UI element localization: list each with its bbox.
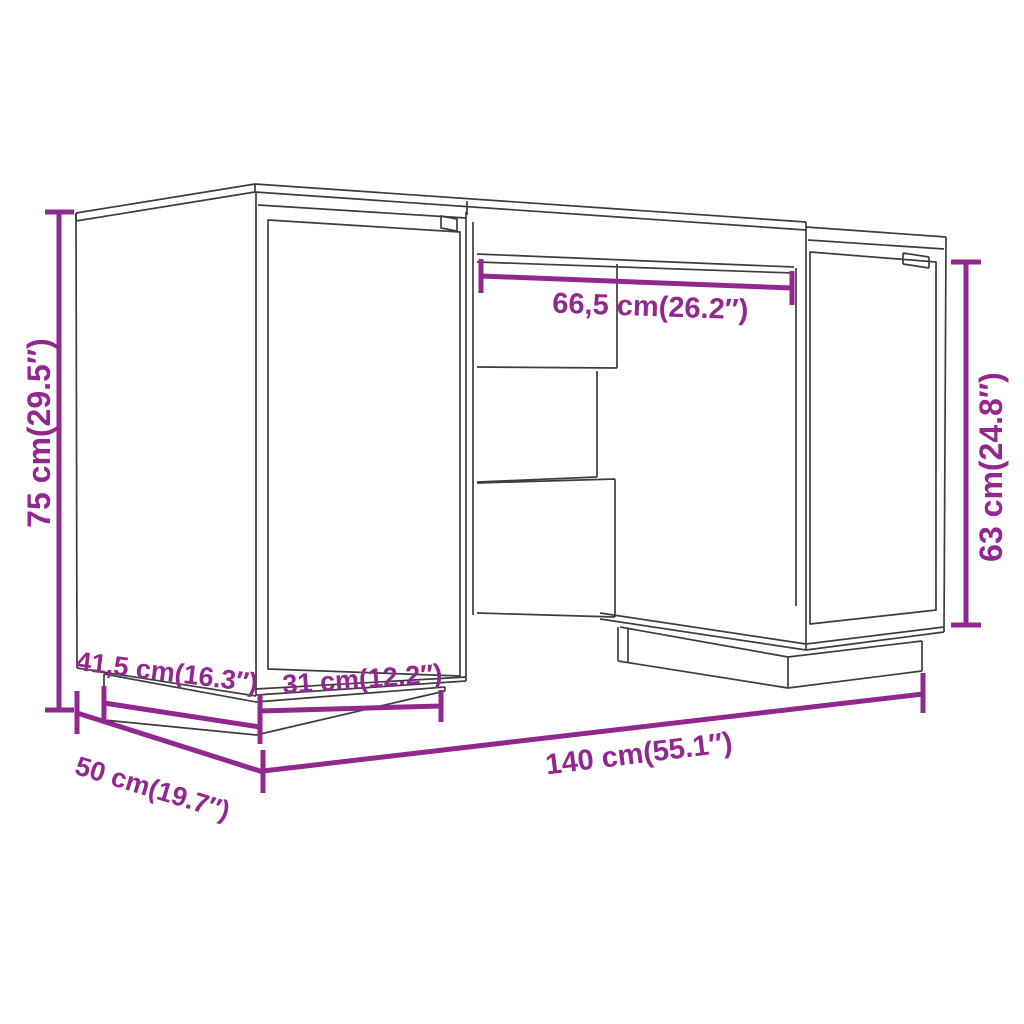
- desktop-outline: [76, 184, 946, 249]
- left-side-panel: [76, 192, 256, 696]
- dimension-label-door-width: 31 cm(12.2″): [282, 658, 444, 699]
- right-door: [810, 252, 936, 624]
- diagram-canvas: 75 cm(29.5″) 66,5 cm(26.2″) 63 cm(24.8″)…: [0, 0, 1024, 1024]
- dimension-label-height: 75 cm(29.5″): [21, 338, 57, 528]
- dimension-height: 75 cm(29.5″): [21, 212, 74, 710]
- dimension-label-depth: 50 cm(19.7″): [72, 751, 234, 826]
- left-door: [268, 220, 460, 676]
- dimension-kneehole-width: 66,5 cm(26.2″): [481, 259, 792, 326]
- dimension-label-cabinet-height: 63 cm(24.8″): [973, 372, 1009, 562]
- left-cabinet-front: [256, 205, 473, 695]
- dimension-cabinet-height: 63 cm(24.8″): [951, 262, 1009, 625]
- left-door-handle-icon: [441, 216, 457, 231]
- desk-dimension-diagram: 75 cm(29.5″) 66,5 cm(26.2″) 63 cm(24.8″)…: [0, 0, 1024, 1024]
- dimension-label-kneehole-width: 66,5 cm(26.2″): [552, 288, 749, 327]
- dimension-plinth-depth: 41,5 cm(16.3″): [75, 646, 260, 744]
